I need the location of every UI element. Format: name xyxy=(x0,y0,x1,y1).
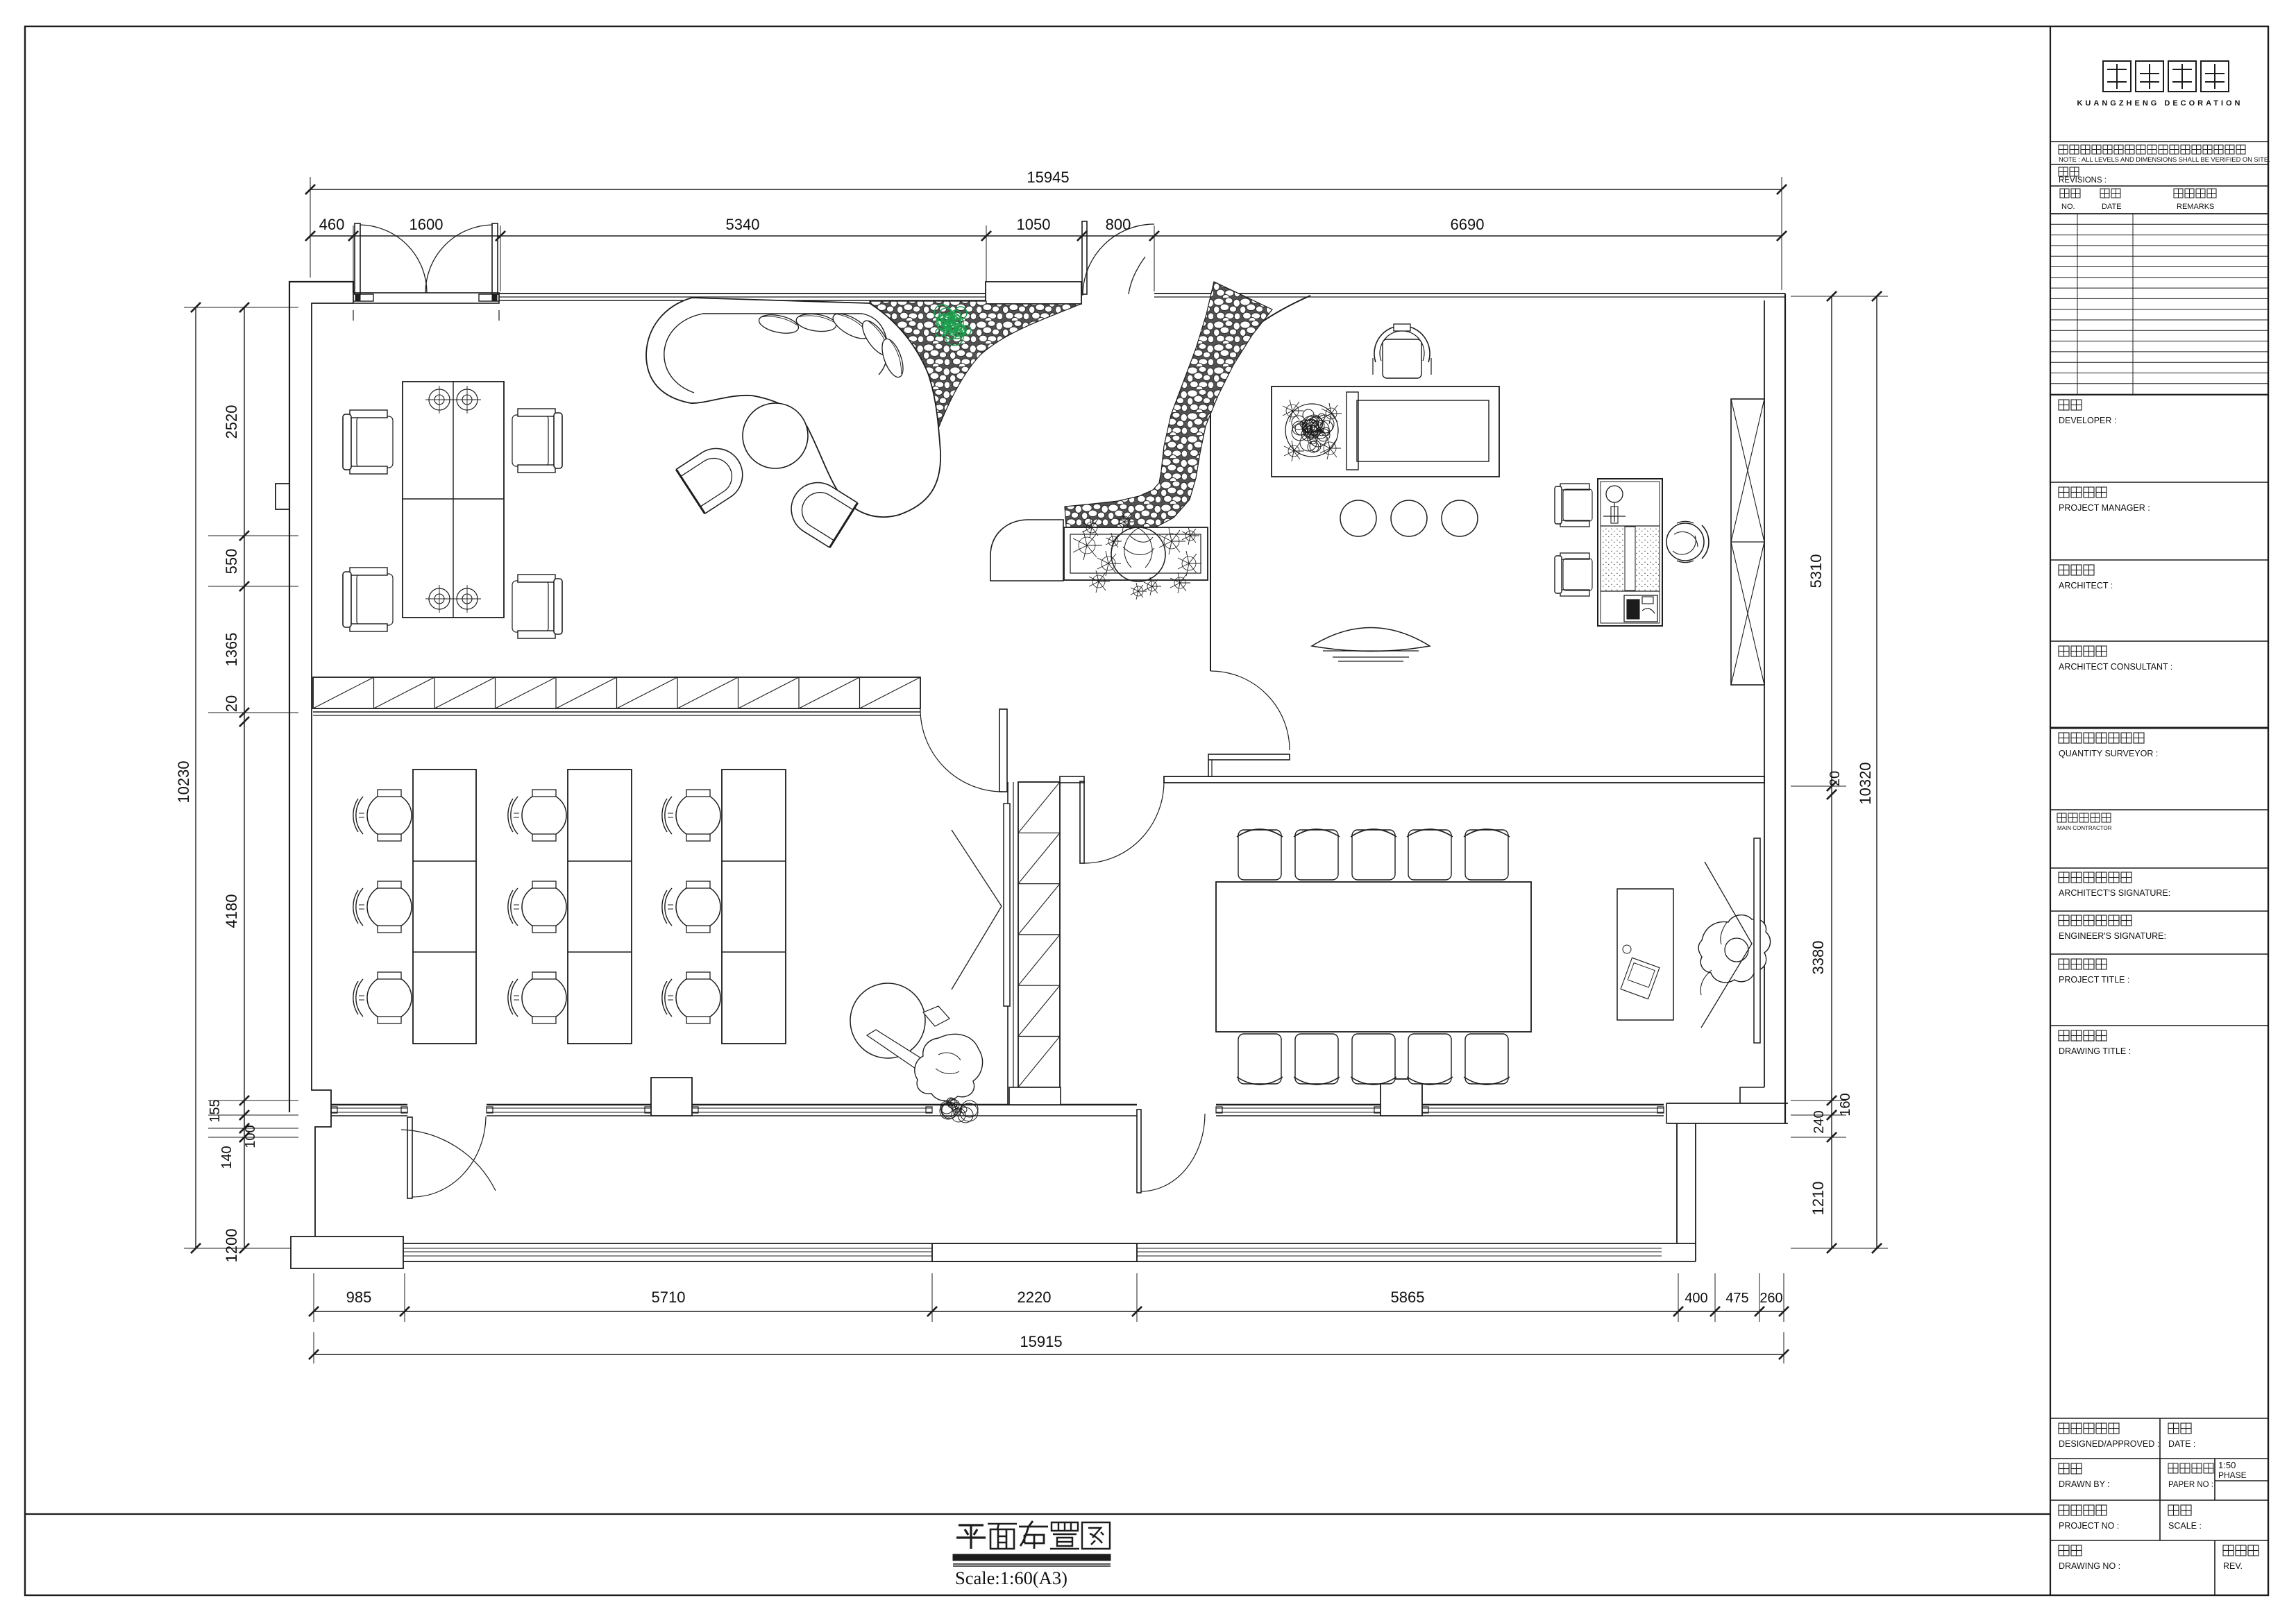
svg-text:DESIGNED/APPROVED :: DESIGNED/APPROVED : xyxy=(2059,1439,2159,1449)
svg-text:MAIN CONTRACTOR: MAIN CONTRACTOR xyxy=(2057,825,2112,831)
svg-text:100: 100 xyxy=(243,1125,258,1148)
svg-text:5710: 5710 xyxy=(652,1289,686,1306)
svg-text:985: 985 xyxy=(346,1289,372,1306)
svg-text:260: 260 xyxy=(1759,1291,1782,1306)
svg-text:PROJECT TITLE :: PROJECT TITLE : xyxy=(2059,975,2129,985)
svg-text:REV.: REV. xyxy=(2223,1561,2243,1571)
svg-text:20: 20 xyxy=(1827,771,1843,786)
svg-text:240: 240 xyxy=(1812,1110,1827,1133)
svg-text:NO.: NO. xyxy=(2061,203,2075,211)
svg-text:800: 800 xyxy=(1106,216,1131,233)
svg-text:140: 140 xyxy=(219,1146,235,1169)
svg-text:DATE :: DATE : xyxy=(2168,1439,2195,1449)
svg-text:ENGINEER'S SIGNATURE:: ENGINEER'S SIGNATURE: xyxy=(2059,931,2166,941)
svg-text:1600: 1600 xyxy=(410,216,444,233)
svg-text:5340: 5340 xyxy=(726,216,760,233)
svg-text:475: 475 xyxy=(1725,1291,1748,1306)
svg-text:KUANGZHENG DECORATION: KUANGZHENG DECORATION xyxy=(2077,99,2243,108)
svg-text:ARCHITECT'S SIGNATURE:: ARCHITECT'S SIGNATURE: xyxy=(2059,888,2170,898)
svg-text:5310: 5310 xyxy=(1807,554,1825,588)
svg-text:PROJECT MANAGER :: PROJECT MANAGER : xyxy=(2059,503,2150,513)
svg-text:10230: 10230 xyxy=(175,760,192,803)
svg-text:ARCHITECT :: ARCHITECT : xyxy=(2059,581,2113,590)
svg-text:SCALE :: SCALE : xyxy=(2168,1521,2202,1531)
svg-text:1210: 1210 xyxy=(1809,1182,1827,1216)
svg-text:400: 400 xyxy=(1685,1291,1707,1306)
svg-text:160: 160 xyxy=(1838,1093,1853,1116)
svg-text:NOTE : ALL LEVELS AND DIMENSIO: NOTE : ALL LEVELS AND DIMENSIONS SHALL B… xyxy=(2059,156,2270,163)
svg-text:DRAWN BY :: DRAWN BY : xyxy=(2059,1479,2110,1489)
svg-text:DEVELOPER :: DEVELOPER : xyxy=(2059,416,2116,425)
svg-text:5865: 5865 xyxy=(1391,1289,1425,1306)
svg-text:4180: 4180 xyxy=(223,894,240,928)
svg-text:155: 155 xyxy=(208,1099,223,1122)
svg-text:ARCHITECT CONSULTANT :: ARCHITECT CONSULTANT : xyxy=(2059,662,2172,672)
svg-text:QUANTITY SURVEYOR :: QUANTITY SURVEYOR : xyxy=(2059,749,2158,758)
svg-text:1200: 1200 xyxy=(223,1229,240,1263)
svg-text:PHASE: PHASE xyxy=(2218,1470,2247,1480)
svg-text:550: 550 xyxy=(223,549,240,575)
svg-text:1050: 1050 xyxy=(1017,216,1051,233)
svg-text:2220: 2220 xyxy=(1018,1289,1052,1306)
svg-text:460: 460 xyxy=(319,216,345,233)
svg-text:2520: 2520 xyxy=(223,405,240,439)
svg-text:3380: 3380 xyxy=(1809,941,1827,975)
svg-text:1:50: 1:50 xyxy=(2218,1460,2236,1470)
svg-text:DRAWING NO :: DRAWING NO : xyxy=(2059,1561,2120,1571)
svg-text:15915: 15915 xyxy=(1020,1333,1062,1350)
svg-text:DRAWING TITLE :: DRAWING TITLE : xyxy=(2059,1046,2131,1056)
svg-text:20: 20 xyxy=(223,695,240,712)
svg-text:REVISIONS :: REVISIONS : xyxy=(2059,176,2107,185)
svg-text:6690: 6690 xyxy=(1451,216,1485,233)
svg-text:10320: 10320 xyxy=(1857,762,1874,804)
svg-text:1365: 1365 xyxy=(223,633,240,667)
svg-text:PROJECT NO :: PROJECT NO : xyxy=(2059,1521,2119,1531)
svg-text:PAPER NO :: PAPER NO : xyxy=(2168,1481,2213,1489)
svg-text:REMARKS: REMARKS xyxy=(2177,203,2214,211)
svg-text:Scale:1:60(A3): Scale:1:60(A3) xyxy=(955,1567,1067,1588)
svg-text:DATE: DATE xyxy=(2102,203,2122,211)
svg-text:15945: 15945 xyxy=(1027,169,1069,186)
